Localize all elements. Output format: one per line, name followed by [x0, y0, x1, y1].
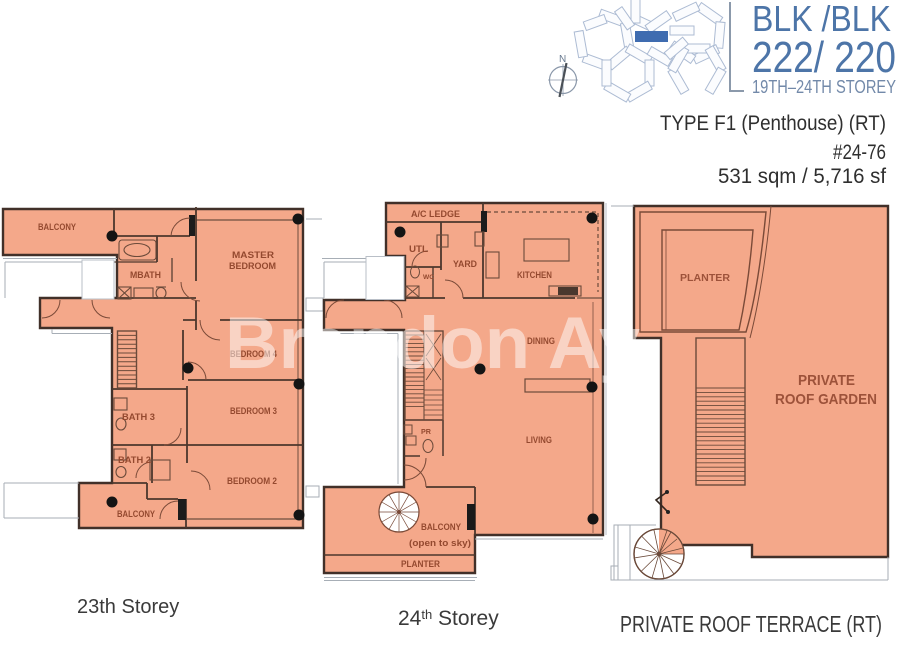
- svg-text:PRIVATE ROOF TERRACE (RT): PRIVATE ROOF TERRACE (RT): [620, 611, 882, 637]
- svg-text:222/ 220: 222/ 220: [752, 33, 896, 82]
- svg-text:24th Storey: 24th Storey: [398, 607, 499, 630]
- svg-text:19TH–24TH STOREY: 19TH–24TH STOREY: [752, 77, 896, 97]
- svg-text:LIVING: LIVING: [526, 435, 552, 445]
- svg-text:WC: WC: [423, 274, 434, 281]
- svg-text:MBATH: MBATH: [130, 270, 161, 280]
- svg-text:PR: PR: [421, 427, 432, 436]
- svg-text:TYPE F1 (Penthouse) (RT): TYPE F1 (Penthouse) (RT): [660, 112, 886, 135]
- svg-text:23th Storey: 23th Storey: [77, 596, 179, 618]
- svg-text:PRIVATE: PRIVATE: [798, 372, 855, 389]
- svg-text:BATH 3: BATH 3: [122, 412, 155, 422]
- svg-text:BEDROOM 3: BEDROOM 3: [230, 406, 277, 416]
- svg-text:(open to sky): (open to sky): [409, 538, 471, 548]
- svg-text:MASTER: MASTER: [232, 250, 275, 260]
- svg-text:Brandon Ay: Brandon Ay: [225, 303, 640, 384]
- svg-text:531 sqm / 5,716 sf: 531 sqm / 5,716 sf: [718, 165, 886, 188]
- svg-text:#24-76: #24-76: [833, 141, 886, 164]
- svg-text:ROOF GARDEN: ROOF GARDEN: [775, 391, 877, 408]
- svg-text:BALCONY: BALCONY: [421, 522, 461, 532]
- svg-text:PLANTER: PLANTER: [401, 559, 440, 569]
- svg-text:YARD: YARD: [453, 259, 477, 269]
- svg-text:BATH 2: BATH 2: [118, 455, 151, 465]
- svg-text:BEDROOM 2: BEDROOM 2: [227, 476, 277, 486]
- svg-text:KITCHEN: KITCHEN: [517, 270, 552, 280]
- svg-text:A/C LEDGE: A/C LEDGE: [411, 209, 460, 219]
- svg-text:UTL: UTL: [409, 244, 429, 254]
- svg-text:BALCONY: BALCONY: [117, 509, 155, 519]
- svg-text:PLANTER: PLANTER: [680, 273, 731, 284]
- svg-text:BEDROOM: BEDROOM: [229, 261, 276, 271]
- svg-text:BALCONY: BALCONY: [38, 222, 76, 232]
- svg-text:N: N: [559, 54, 566, 65]
